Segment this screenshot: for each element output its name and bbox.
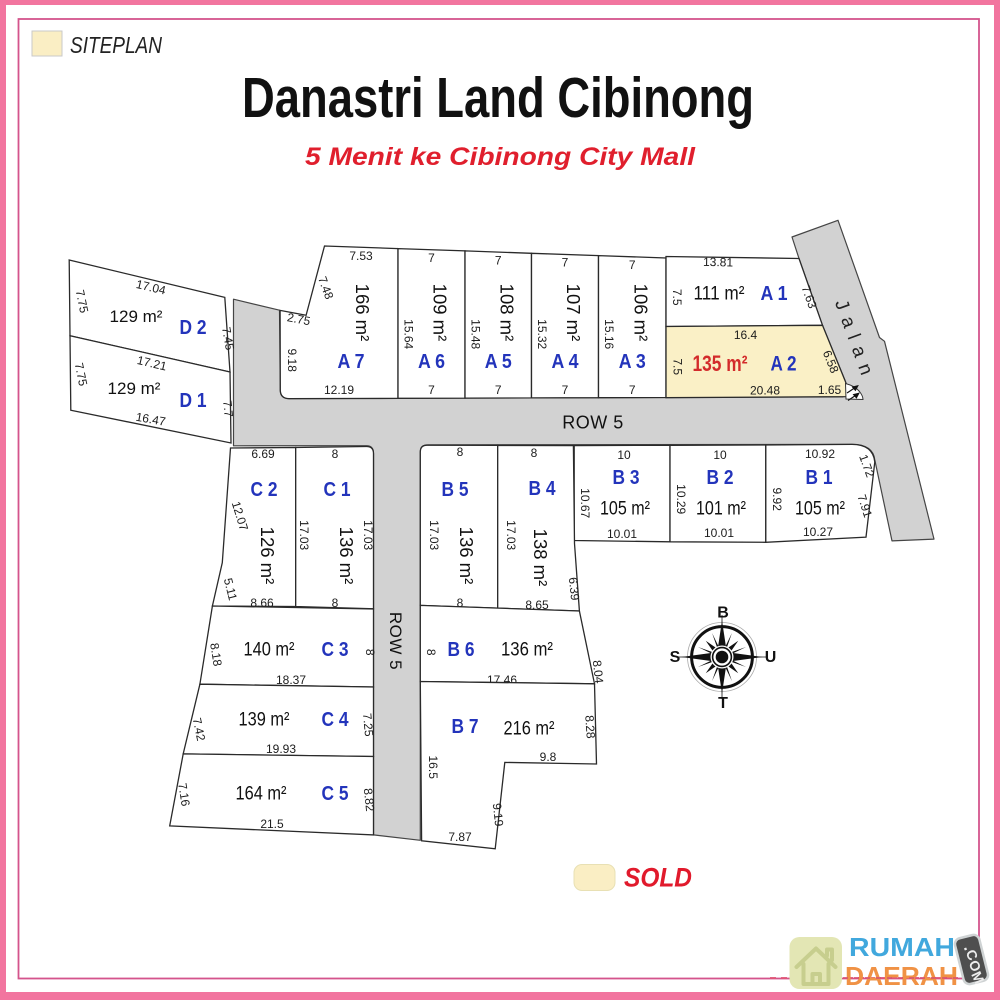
svg-text:B: B — [717, 605, 729, 622]
svg-text:B 3: B 3 — [613, 467, 640, 489]
svg-text:10: 10 — [713, 448, 727, 462]
svg-text:9.19: 9.19 — [490, 802, 506, 827]
svg-text:7: 7 — [629, 258, 636, 272]
svg-text:136 m²: 136 m² — [501, 640, 553, 661]
svg-text:16.4: 16.4 — [734, 328, 758, 342]
svg-text:T: T — [718, 695, 728, 712]
svg-text:9.92: 9.92 — [770, 488, 784, 512]
svg-text:108 m²: 108 m² — [496, 284, 517, 342]
svg-text:105 m²: 105 m² — [600, 499, 650, 520]
svg-text:106 m²: 106 m² — [630, 284, 651, 342]
svg-text:107 m²: 107 m² — [563, 284, 584, 342]
svg-text:15.64: 15.64 — [402, 319, 416, 349]
svg-text:A 4: A 4 — [552, 351, 580, 373]
svg-text:7: 7 — [629, 383, 636, 397]
svg-text:12.19: 12.19 — [324, 383, 354, 397]
svg-text:SOLD: SOLD — [624, 863, 692, 893]
svg-text:5 Menit ke Cibinong City Mall: 5 Menit ke Cibinong City Mall — [305, 143, 696, 171]
svg-text:8: 8 — [363, 649, 377, 656]
svg-text:9.18: 9.18 — [285, 349, 299, 373]
svg-text:129 m²: 129 m² — [110, 307, 163, 326]
svg-text:DAERAH: DAERAH — [845, 961, 958, 991]
svg-text:164 m²: 164 m² — [236, 784, 287, 805]
svg-text:SITEPLAN: SITEPLAN — [70, 32, 162, 58]
svg-text:7.25: 7.25 — [360, 713, 376, 738]
svg-text:Danastri Land Cibinong: Danastri Land Cibinong — [242, 66, 754, 130]
svg-text:138 m²: 138 m² — [530, 529, 551, 587]
svg-text:A 2: A 2 — [771, 353, 797, 376]
svg-text:13.81: 13.81 — [703, 255, 734, 270]
svg-text:B 5: B 5 — [442, 479, 469, 501]
svg-text:105 m²: 105 m² — [795, 499, 845, 520]
svg-text:7: 7 — [428, 251, 435, 265]
svg-text:136 m²: 136 m² — [456, 527, 477, 585]
svg-text:10.27: 10.27 — [803, 525, 833, 539]
svg-text:B 4: B 4 — [529, 478, 557, 500]
svg-text:S: S — [670, 649, 681, 666]
svg-text:A 3: A 3 — [619, 351, 646, 373]
svg-text:216 m²: 216 m² — [504, 719, 555, 740]
svg-text:ROW 5: ROW 5 — [562, 413, 624, 433]
svg-text:6.69: 6.69 — [251, 447, 275, 461]
svg-text:17.03: 17.03 — [504, 520, 518, 550]
svg-text:6.39: 6.39 — [566, 576, 582, 601]
svg-text:7: 7 — [562, 256, 569, 270]
svg-text:9.8: 9.8 — [540, 750, 557, 764]
svg-text:B 6: B 6 — [448, 639, 475, 661]
svg-text:U: U — [765, 649, 777, 666]
svg-text:20.48: 20.48 — [750, 384, 780, 398]
svg-text:10.01: 10.01 — [704, 526, 734, 540]
svg-text:17.03: 17.03 — [361, 520, 375, 550]
svg-text:17.03: 17.03 — [427, 520, 441, 550]
svg-text:7: 7 — [495, 383, 502, 397]
svg-text:A 6: A 6 — [418, 351, 445, 373]
svg-text:8: 8 — [457, 445, 464, 459]
svg-text:15.48: 15.48 — [469, 319, 483, 349]
svg-text:10: 10 — [617, 448, 631, 462]
svg-text:B 2: B 2 — [707, 467, 734, 489]
svg-text:10.01: 10.01 — [607, 527, 637, 541]
svg-text:8.28: 8.28 — [582, 715, 598, 740]
svg-text:109 m²: 109 m² — [430, 284, 451, 342]
svg-text:21.5: 21.5 — [260, 817, 284, 831]
svg-text:7.5: 7.5 — [670, 289, 684, 306]
svg-text:7.7: 7.7 — [220, 400, 236, 418]
svg-text:7: 7 — [428, 383, 435, 397]
svg-text:C 5: C 5 — [322, 783, 349, 805]
svg-text:17.03: 17.03 — [297, 520, 311, 550]
svg-text:16.5: 16.5 — [426, 756, 440, 780]
svg-text:140 m²: 140 m² — [244, 640, 295, 661]
svg-text:1.65: 1.65 — [818, 383, 842, 397]
svg-text:129 m²: 129 m² — [108, 379, 161, 398]
svg-text:7.5: 7.5 — [671, 358, 685, 375]
svg-text:7.87: 7.87 — [448, 830, 472, 844]
svg-text:139 m²: 139 m² — [239, 710, 290, 731]
svg-text:15.16: 15.16 — [602, 319, 616, 349]
svg-text:10.67: 10.67 — [578, 488, 592, 518]
svg-text:D 2: D 2 — [180, 317, 207, 339]
svg-text:RUMAH: RUMAH — [849, 932, 955, 962]
svg-text:166 m²: 166 m² — [352, 284, 373, 342]
svg-text:8: 8 — [332, 447, 339, 461]
svg-text:7: 7 — [495, 253, 502, 267]
svg-text:A 5: A 5 — [485, 351, 512, 373]
svg-text:8: 8 — [424, 649, 438, 656]
svg-text:C 4: C 4 — [322, 709, 350, 731]
svg-text:19.93: 19.93 — [266, 742, 296, 756]
svg-text:D 1: D 1 — [180, 390, 207, 412]
svg-text:A 7: A 7 — [338, 351, 365, 373]
svg-text:15.32: 15.32 — [535, 319, 549, 349]
svg-text:8.82: 8.82 — [361, 787, 377, 812]
svg-text:126 m²: 126 m² — [257, 527, 278, 585]
svg-text:C 1: C 1 — [324, 479, 351, 501]
svg-text:8.04: 8.04 — [590, 659, 606, 684]
svg-text:7.53: 7.53 — [349, 249, 373, 263]
svg-text:B 1: B 1 — [806, 467, 833, 489]
svg-text:8: 8 — [531, 446, 538, 460]
svg-text:135 m²: 135 m² — [693, 351, 748, 376]
svg-text:7: 7 — [562, 383, 569, 397]
svg-text:A 1: A 1 — [761, 283, 788, 305]
svg-text:B 7: B 7 — [452, 716, 479, 738]
svg-text:111 m²: 111 m² — [694, 284, 745, 305]
svg-text:ROW 5: ROW 5 — [386, 612, 405, 670]
svg-text:101 m²: 101 m² — [696, 499, 746, 520]
svg-text:C 2: C 2 — [251, 479, 278, 501]
svg-text:136 m²: 136 m² — [336, 527, 357, 585]
svg-text:10.92: 10.92 — [805, 447, 835, 461]
svg-text:10.29: 10.29 — [674, 484, 688, 514]
svg-text:C 3: C 3 — [322, 639, 349, 661]
